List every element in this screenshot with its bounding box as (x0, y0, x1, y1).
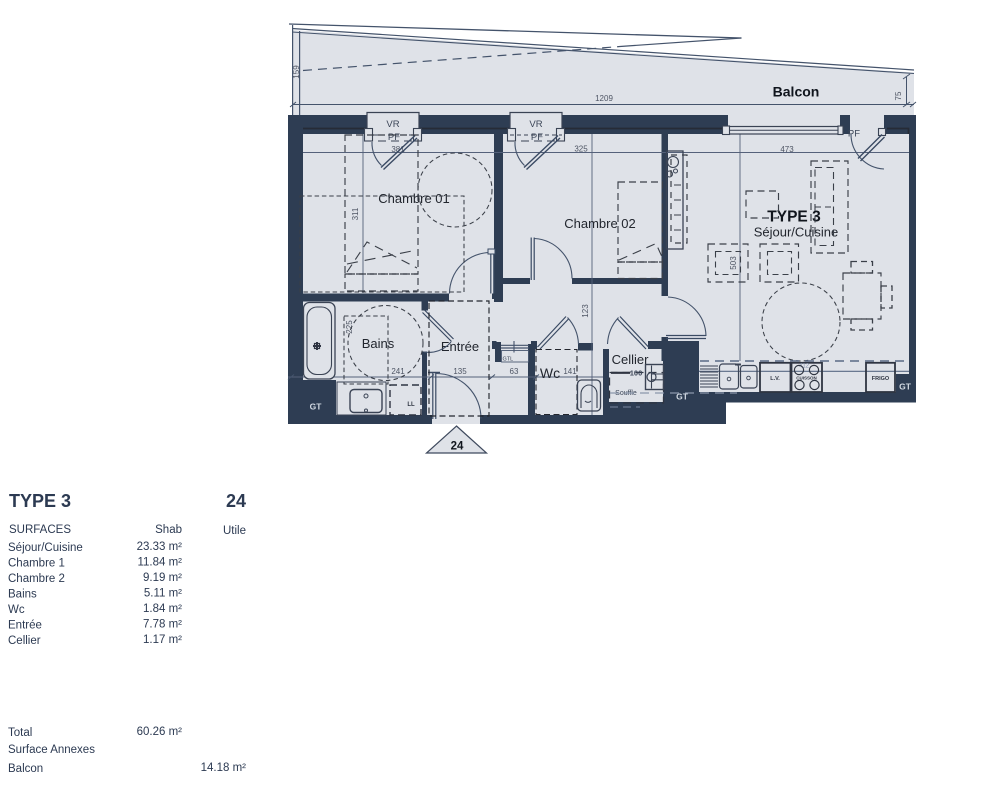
svg-text:225: 225 (345, 320, 354, 334)
svg-text:Cellier: Cellier (8, 635, 41, 647)
svg-text:Séjour/Cuisine: Séjour/Cuisine (8, 542, 83, 554)
svg-text:Total: Total (8, 727, 32, 739)
svg-text:PF: PF (388, 132, 400, 143)
svg-text:GTL: GTL (503, 357, 514, 363)
svg-text:Bains: Bains (8, 589, 37, 601)
svg-text:TYPE 3: TYPE 3 (767, 209, 821, 226)
svg-text:9.19 m²: 9.19 m² (143, 572, 182, 584)
svg-text:1.84 m²: 1.84 m² (143, 603, 182, 615)
svg-text:135: 135 (453, 367, 467, 376)
svg-text:412: 412 (799, 364, 810, 370)
svg-text:Balcon: Balcon (773, 84, 820, 100)
svg-text:Utile: Utile (223, 525, 246, 537)
svg-text:5.11 m²: 5.11 m² (144, 588, 182, 600)
svg-text:503: 503 (729, 256, 738, 270)
svg-text:GT: GT (310, 402, 323, 412)
svg-text:FRIGO: FRIGO (872, 376, 890, 382)
svg-text:100: 100 (630, 369, 643, 378)
svg-text:Balcon: Balcon (8, 763, 43, 775)
svg-text:159: 159 (292, 65, 301, 79)
svg-text:Cellier: Cellier (612, 352, 650, 367)
svg-text:Chambre 2: Chambre 2 (8, 573, 65, 585)
svg-text:141: 141 (563, 367, 577, 376)
svg-text:VR: VR (386, 119, 399, 130)
svg-text:63: 63 (510, 367, 519, 376)
svg-text:GT: GT (676, 392, 689, 402)
svg-text:75: 75 (894, 91, 903, 100)
svg-text:11.84 m²: 11.84 m² (137, 557, 182, 569)
svg-text:1.17 m²: 1.17 m² (143, 634, 182, 646)
svg-text:TYPE 3: TYPE 3 (9, 491, 71, 511)
svg-text:241: 241 (391, 367, 405, 376)
svg-text:VR: VR (529, 119, 542, 130)
svg-text:14.18 m²: 14.18 m² (201, 762, 247, 774)
svg-text:Chambre 1: Chambre 1 (8, 558, 65, 570)
svg-text:Séjour/Cuisine: Séjour/Cuisine (754, 225, 839, 240)
svg-text:PF: PF (848, 129, 860, 140)
svg-text:Surface Annexes: Surface Annexes (8, 744, 95, 756)
svg-text:60.26 m²: 60.26 m² (137, 726, 183, 738)
svg-text:Wc: Wc (8, 604, 25, 616)
svg-text:473: 473 (780, 145, 794, 154)
svg-text:Chambre 02: Chambre 02 (564, 216, 636, 231)
svg-text:24: 24 (226, 491, 246, 511)
svg-text:GT: GT (899, 382, 912, 392)
svg-text:L.V.: L.V. (770, 376, 780, 382)
svg-text:24: 24 (451, 441, 464, 453)
svg-text:Chambre 01: Chambre 01 (378, 191, 450, 206)
svg-text:SURFACES: SURFACES (9, 524, 71, 536)
svg-text:Wc: Wc (540, 365, 560, 381)
svg-text:Shab: Shab (155, 524, 182, 536)
svg-text:7.78 m²: 7.78 m² (143, 619, 182, 631)
svg-text:PF: PF (531, 132, 543, 143)
svg-text:23.33 m²: 23.33 m² (137, 541, 183, 553)
svg-text:325: 325 (574, 145, 588, 154)
svg-text:Entrée: Entrée (8, 620, 42, 632)
svg-text:LL: LL (407, 402, 415, 408)
svg-text:311: 311 (351, 207, 360, 220)
svg-text:CUISSON: CUISSON (796, 376, 817, 381)
svg-text:1209: 1209 (595, 94, 613, 103)
svg-text:123: 123 (581, 304, 590, 318)
svg-text:Bains: Bains (362, 336, 395, 351)
